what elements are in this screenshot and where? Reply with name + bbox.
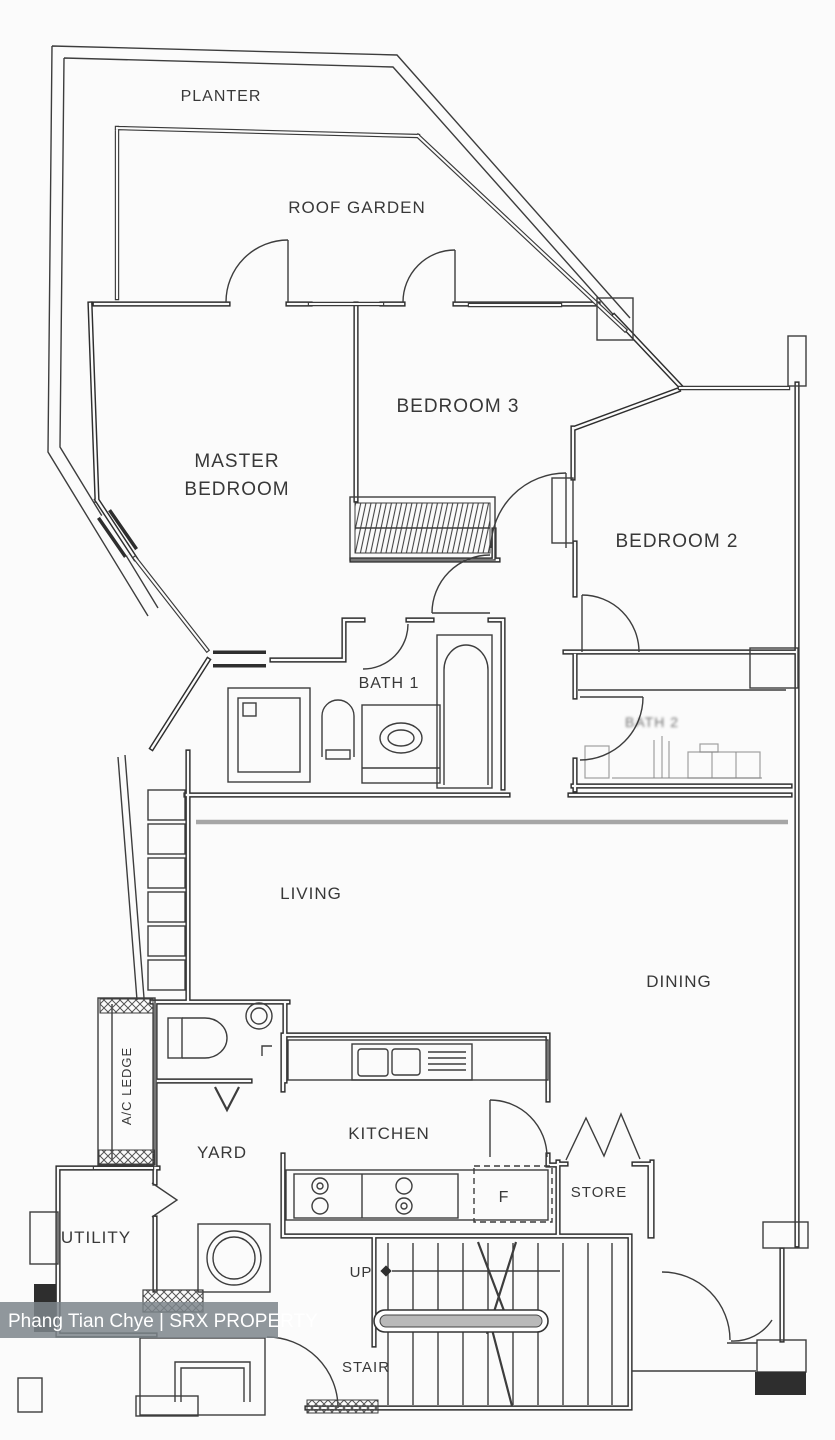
up-direction-line xyxy=(380,1265,560,1276)
label-ac-ledge: A/C LEDGE xyxy=(119,1047,134,1125)
door-utility-chevron xyxy=(152,1183,177,1217)
vanity-sink xyxy=(362,705,440,783)
utility-window xyxy=(30,1212,58,1264)
label-living: LIVING xyxy=(280,884,342,903)
stairs xyxy=(374,1242,612,1406)
label-master-line2: BEDROOM xyxy=(184,479,289,500)
door-bedroom3 xyxy=(491,473,566,548)
label-stair: STAIR xyxy=(342,1359,390,1376)
door-master-bedroom xyxy=(432,555,490,613)
handrail xyxy=(374,1310,548,1332)
wc-basin xyxy=(246,1003,272,1029)
door-sill xyxy=(307,1400,378,1413)
door-roofgarden-bedroom3 xyxy=(403,250,455,302)
door-wc-tick xyxy=(262,1046,272,1056)
kitchen-sink-counter xyxy=(288,1040,548,1080)
door-roofgarden-master xyxy=(226,240,288,302)
wardrobe-bedroom3 xyxy=(350,497,495,560)
bathtub xyxy=(437,635,492,788)
door-store-bifold xyxy=(566,1114,640,1160)
label-store: STORE xyxy=(571,1184,627,1201)
label-bath1: BATH 1 xyxy=(359,675,420,692)
label-up: UP xyxy=(350,1264,373,1281)
floor-trap-v xyxy=(215,1087,239,1110)
wc-basin-inner xyxy=(251,1008,267,1024)
label-bath2-faint: BATH 2 xyxy=(625,714,679,730)
label-master-line1: MASTER xyxy=(194,451,279,472)
label-kitchen: KITCHEN xyxy=(348,1124,430,1143)
door-bedroom2 xyxy=(582,595,639,652)
door-entrance xyxy=(662,1272,772,1341)
label-dining: DINING xyxy=(646,972,712,991)
wall-nib xyxy=(552,478,573,543)
bay-ledge-squares xyxy=(118,755,185,1000)
floorplan-page: PLANTER ROOF GARDEN BEDROOM 3 MASTER BED… xyxy=(0,0,835,1440)
label-roof-garden: ROOF GARDEN xyxy=(288,198,426,217)
label-fridge: F xyxy=(499,1189,510,1206)
washing-machine xyxy=(198,1224,270,1292)
fridge-dashed-box xyxy=(474,1166,552,1222)
floorplan-drawing: PLANTER ROOF GARDEN BEDROOM 3 MASTER BED… xyxy=(0,0,835,1440)
yard-fixtures xyxy=(198,1087,270,1292)
door-bath1 xyxy=(363,624,408,669)
wc-toilet xyxy=(168,1018,227,1058)
wc-fixtures xyxy=(168,1003,272,1058)
label-utility: UTILITY xyxy=(61,1228,131,1247)
bath1-fixtures xyxy=(228,635,492,788)
door-kitchen xyxy=(490,1100,547,1157)
wall-cap xyxy=(788,336,806,386)
label-planter: PLANTER xyxy=(181,88,262,105)
watermark-text: Phang Tian Chye | SRX PROPERTY xyxy=(8,1311,318,1332)
toilet xyxy=(322,700,354,759)
planter-outline xyxy=(48,46,630,616)
label-yard: YARD xyxy=(197,1143,247,1162)
label-bedroom3: BEDROOM 3 xyxy=(396,396,519,417)
label-bedroom2: BEDROOM 2 xyxy=(615,531,738,552)
watermark: Phang Tian Chye | SRX PROPERTY xyxy=(0,1302,318,1338)
shower-stall xyxy=(228,688,310,782)
door-yard xyxy=(267,1337,338,1408)
bath2-fixtures xyxy=(585,736,762,778)
